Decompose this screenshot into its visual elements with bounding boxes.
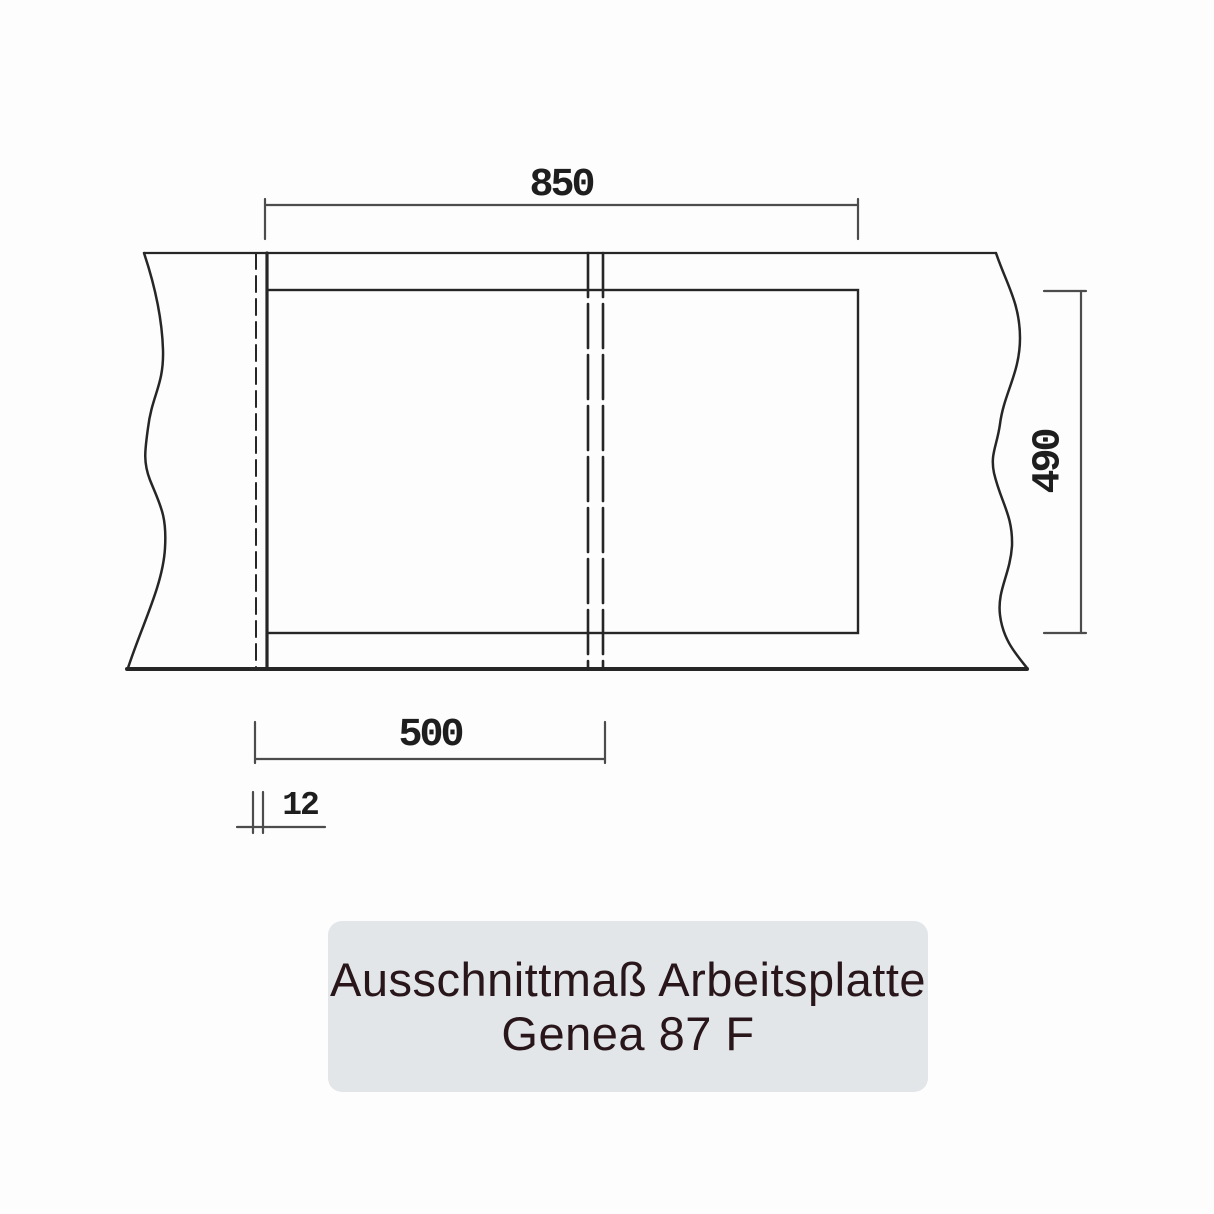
worktop-outline <box>127 253 1027 669</box>
center-divider-lines <box>588 253 603 669</box>
dim-cutout-width-label: 850 <box>529 163 592 208</box>
worktop-cutout-diagram-page: 850 490 500 12 Ausschnittmaß Arbeitsplat… <box>0 0 1214 1214</box>
dim-left-bowl-width-label: 500 <box>398 713 461 758</box>
worktop-left-break-line <box>128 253 165 668</box>
caption-model-line: Genea 87 F <box>501 1007 754 1060</box>
dim-edge-distance-label: 12 <box>282 787 318 824</box>
caption-title-line: Ausschnittmaß Arbeitsplatte <box>330 953 926 1006</box>
cutout-outline <box>267 290 858 633</box>
dim-cutout-depth-label: 490 <box>1027 430 1072 493</box>
worktop-right-break-line <box>993 253 1027 668</box>
left-edge-band-lines <box>256 253 267 669</box>
caption-panel: Ausschnittmaß Arbeitsplatte Genea 87 F <box>328 921 928 1092</box>
